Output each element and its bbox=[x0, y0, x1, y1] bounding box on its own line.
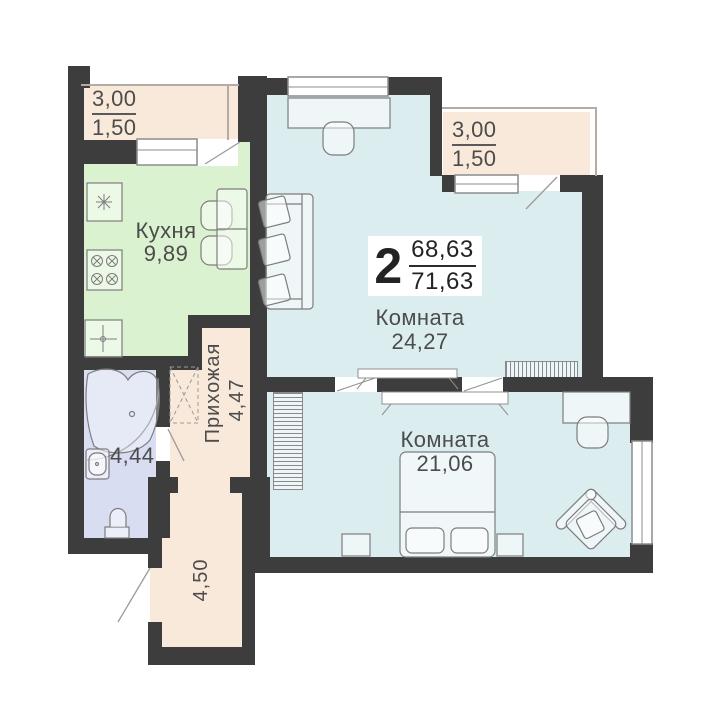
door-opening bbox=[156, 427, 170, 461]
living-area-value: 68,63 bbox=[409, 236, 476, 267]
balcony-area: 1,50 bbox=[92, 115, 136, 140]
room-name: Прихожая bbox=[202, 343, 224, 444]
wall bbox=[582, 175, 603, 392]
door-opening bbox=[462, 377, 503, 392]
wall bbox=[68, 66, 84, 552]
room-area: 4,47 bbox=[226, 379, 248, 422]
bathroom-label: 4,44 bbox=[110, 443, 154, 469]
room-area: 9,89 bbox=[144, 241, 188, 266]
door-opening bbox=[518, 175, 560, 191]
balcony-dimension: 3,00 bbox=[452, 117, 496, 146]
wall bbox=[148, 647, 255, 665]
hallway-label: Прихожая bbox=[202, 323, 222, 463]
total-area-value: 71,63 bbox=[411, 267, 474, 296]
room-name: Комната bbox=[401, 427, 490, 452]
wall bbox=[68, 538, 156, 554]
door-opening bbox=[197, 139, 238, 166]
wall bbox=[251, 377, 335, 392]
balcony-right-label: 3,00 1,50 bbox=[452, 117, 496, 172]
hallway-area-label: 4,47 bbox=[226, 365, 246, 435]
wall bbox=[242, 573, 255, 665]
wall bbox=[377, 377, 462, 392]
wall bbox=[84, 140, 137, 164]
living-room-label: Комната 24,27 bbox=[350, 306, 490, 354]
wall bbox=[156, 367, 170, 427]
kitchen-label: Кухня 9,89 bbox=[100, 219, 232, 265]
wall bbox=[148, 477, 162, 568]
room-name: Комната bbox=[376, 305, 465, 330]
wall bbox=[251, 78, 288, 95]
room-area: 21,06 bbox=[416, 451, 473, 476]
balcony-dimension: 3,00 bbox=[92, 86, 136, 115]
room-area: 24,27 bbox=[391, 329, 448, 354]
hallway-area bbox=[168, 365, 202, 427]
wall bbox=[442, 175, 455, 192]
room-name: Кухня bbox=[136, 218, 197, 243]
room-area: 4,44 bbox=[110, 443, 154, 468]
wardrobe-bedroom bbox=[273, 392, 303, 490]
wall bbox=[68, 356, 200, 370]
wall bbox=[250, 140, 267, 478]
apartment-summary: 2 68,63 71,63 bbox=[368, 236, 482, 296]
wall bbox=[430, 77, 442, 176]
corridor-area-label: 4,50 bbox=[190, 530, 210, 630]
floor-plan: 3,00 1,50 3,00 1,50 Кухня 9,89 Комната 2… bbox=[0, 0, 726, 726]
bedroom-label: Комната 21,06 bbox=[375, 428, 515, 476]
balcony-area: 1,50 bbox=[452, 146, 496, 171]
entrance-gap bbox=[150, 568, 162, 622]
door-opening bbox=[335, 377, 377, 392]
area-fraction: 68,63 71,63 bbox=[409, 236, 476, 296]
balcony-left-label: 3,00 1,50 bbox=[92, 86, 136, 141]
room-area: 4,50 bbox=[190, 559, 212, 602]
wall bbox=[630, 377, 653, 443]
wall bbox=[253, 557, 653, 573]
rooms-count: 2 bbox=[374, 241, 402, 291]
